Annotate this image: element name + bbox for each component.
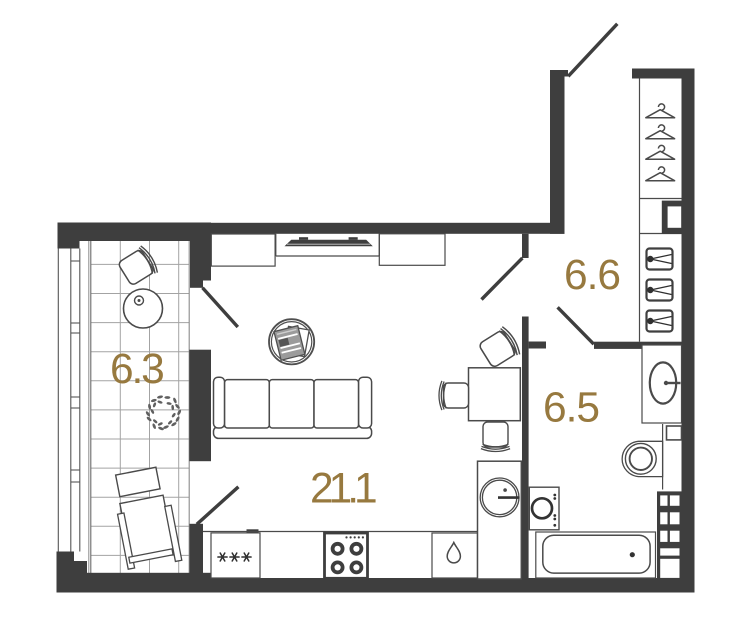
svg-text:21.1: 21.1 [310, 465, 376, 512]
svg-text:6.5: 6.5 [543, 385, 599, 432]
svg-text:6.6: 6.6 [564, 252, 620, 299]
svg-text:6.3: 6.3 [110, 346, 163, 393]
